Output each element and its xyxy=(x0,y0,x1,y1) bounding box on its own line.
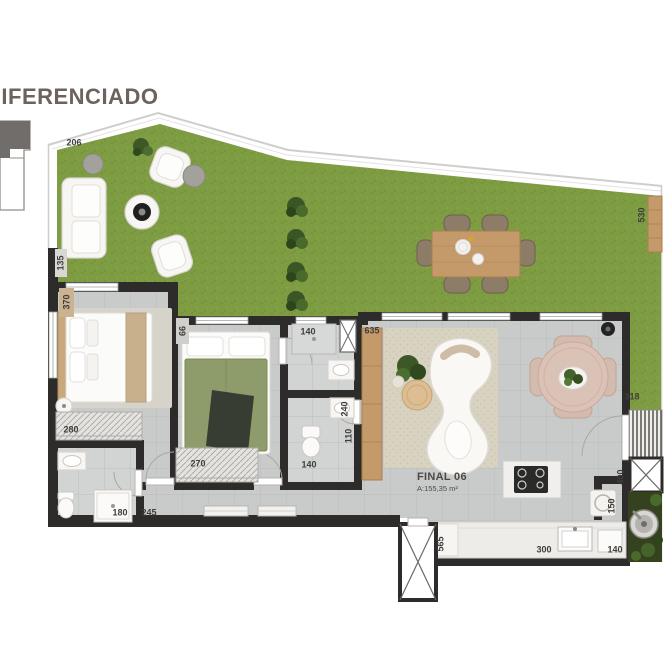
dimension-label: 240 xyxy=(341,401,350,416)
dimension-label: 370 xyxy=(63,294,72,309)
pouf xyxy=(183,165,205,187)
kitchen-counter xyxy=(430,522,626,558)
sideboard xyxy=(362,328,382,480)
kitchen-island xyxy=(503,461,561,498)
dining-chair xyxy=(417,240,434,266)
shaft-right xyxy=(630,458,662,492)
dimension-label: 135 xyxy=(57,255,66,270)
dining-chair xyxy=(444,276,470,293)
dimension-label: 530 xyxy=(638,207,647,222)
unit-area: A:155,35 m² xyxy=(417,484,467,493)
dimension-label: 565 xyxy=(437,536,446,551)
duct-shaft xyxy=(340,320,356,352)
dining-chair xyxy=(518,240,535,266)
wood-deck-strip xyxy=(648,196,662,252)
dimension-label: 280 xyxy=(63,426,78,435)
grill xyxy=(630,510,658,538)
throw-blanket xyxy=(206,390,254,452)
dining-chair xyxy=(482,215,508,232)
dimension-label: 180 xyxy=(112,509,127,518)
wardrobe xyxy=(176,448,258,482)
dimension-label: 245 xyxy=(141,509,156,518)
dining-chair xyxy=(482,276,508,293)
floor-plan-drawing xyxy=(0,0,665,665)
unit-location-keyplan xyxy=(0,121,30,210)
shaft-bottom xyxy=(400,518,436,600)
unit-name: FINAL 06 xyxy=(417,471,467,483)
dimension-label: 140 xyxy=(300,328,315,337)
dimension-label: 635 xyxy=(364,327,379,336)
dimension-label: 66 xyxy=(179,326,188,336)
dimension-label: 300 xyxy=(536,546,551,555)
side-stool xyxy=(392,376,404,388)
bed-runner xyxy=(126,313,146,402)
dimension-label: 206 xyxy=(66,139,81,148)
dimension-label: 150 xyxy=(608,498,617,513)
dimension-label: 110 xyxy=(345,429,354,444)
right-service-strip xyxy=(628,410,663,562)
toilet xyxy=(302,426,320,457)
dimension-label: 400 xyxy=(617,469,626,484)
floor-plan-page: DIFERENCIADO xyxy=(0,0,665,665)
dining-chair xyxy=(444,215,470,232)
pouf xyxy=(83,154,103,174)
pergola-louvers xyxy=(629,410,662,458)
toilet xyxy=(58,492,74,518)
dimension-label: 270 xyxy=(190,460,205,469)
dimension-label: 318 xyxy=(624,393,639,402)
dimension-label: 140 xyxy=(607,546,622,555)
unit-label: FINAL 06 A:155,35 m² xyxy=(417,471,467,493)
dimension-label: 140 xyxy=(301,461,316,470)
